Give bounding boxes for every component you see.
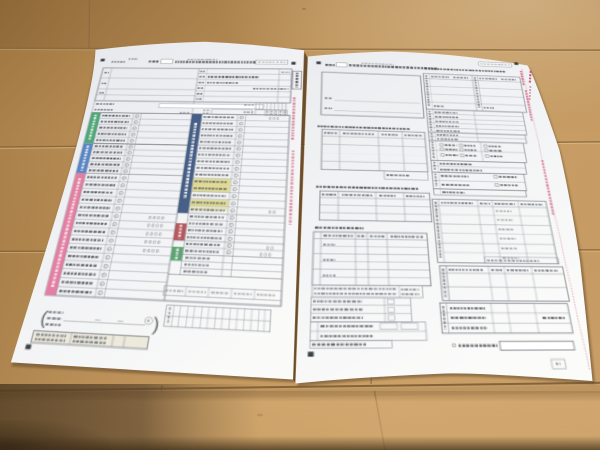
svg-text:0 0 0 0: 0 0 0 0 [145, 232, 162, 238]
svg-text:0 0 0: 0 0 0 [259, 252, 271, 258]
svg-text:0 0 0 0: 0 0 0 0 [148, 215, 164, 220]
svg-text:0 0 0 0: 0 0 0 0 [147, 223, 163, 229]
svg-text:): ) [151, 314, 161, 335]
svg-text:0 0 0 0: 0 0 0 0 [142, 248, 159, 254]
svg-text:0 0 0 0: 0 0 0 0 [144, 240, 161, 246]
svg-text:0 0: 0 0 [266, 245, 274, 251]
svg-text:0 0 0: 0 0 0 [269, 117, 279, 121]
svg-text:—: — [94, 317, 101, 323]
svg-text:0 0: 0 0 [268, 210, 275, 215]
svg-text:—: — [117, 318, 124, 324]
